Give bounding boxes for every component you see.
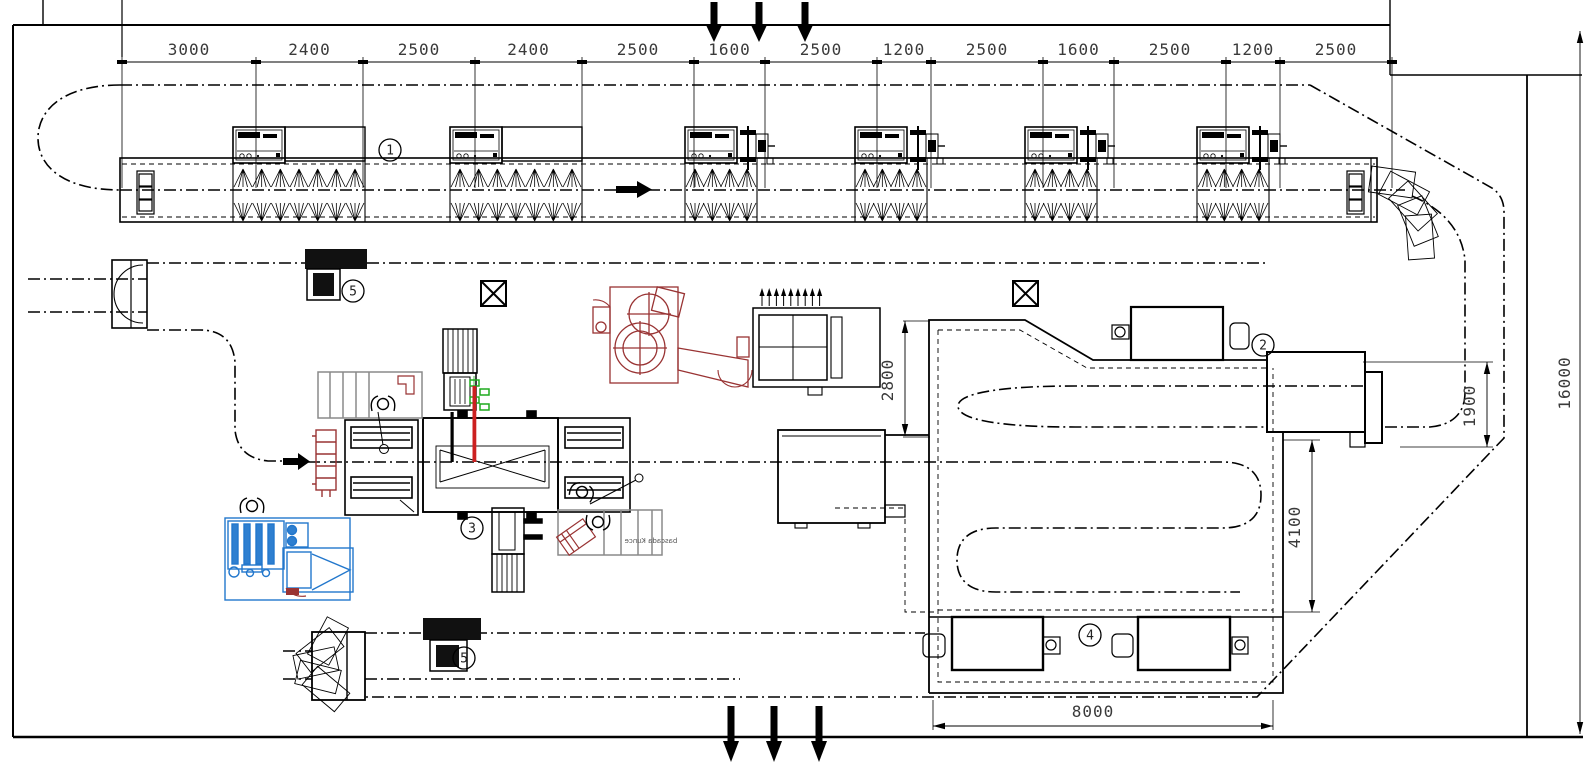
exhaust-arrow-head	[767, 288, 772, 296]
elevator-right	[1347, 171, 1364, 214]
spray-station	[1197, 126, 1287, 222]
spray-station	[233, 127, 365, 222]
x-box-marker	[1013, 281, 1038, 306]
exhaust-arrow-head	[810, 288, 815, 296]
dimension-tick	[1221, 60, 1231, 64]
station-label-4: 4	[1079, 624, 1101, 646]
turning-station-top-right	[1368, 166, 1438, 260]
dimension-value: 2400	[288, 40, 331, 59]
dimension-tick	[689, 60, 699, 64]
outlet-arrow	[811, 706, 827, 762]
dimension-value-loop-width: 2800	[878, 359, 897, 402]
worker-figure	[586, 515, 610, 530]
blower-assembly	[593, 287, 752, 387]
dim-arrow	[1309, 440, 1315, 452]
cabinet-extension	[285, 127, 365, 161]
exhaust-arrow-head	[781, 288, 786, 296]
dimension-tick	[1387, 60, 1397, 64]
station-label-1: 1	[379, 139, 401, 161]
dimension-value-outfeed-width: 1900	[1460, 385, 1479, 428]
entry-arrow	[283, 453, 310, 470]
spray-nozzles	[686, 169, 756, 221]
machine-2	[1112, 307, 1249, 360]
stop-bar-red	[473, 386, 477, 462]
spray-station	[450, 127, 582, 222]
spray-nozzles	[451, 169, 581, 221]
dimension-tick	[577, 60, 587, 64]
inlet-arrow	[706, 2, 722, 42]
exhaust-arrow-head	[817, 288, 822, 296]
dimension-tick	[117, 60, 127, 64]
floor-plan-drawing: 3000240025002400250016002500120025001600…	[0, 0, 1587, 772]
dimension-value: 2500	[617, 40, 660, 59]
transfer-block	[1267, 352, 1382, 447]
turntable-left	[112, 260, 147, 328]
dim-arrow	[1484, 435, 1490, 447]
dimension-value: 2500	[398, 40, 441, 59]
dim-arrow	[1309, 600, 1315, 612]
station-label-2: 2	[1252, 334, 1274, 356]
pusher-bar	[451, 412, 454, 462]
dimension-value: 3000	[168, 40, 211, 59]
outlet-arrow	[723, 706, 739, 762]
spray-nozzles	[1198, 169, 1268, 221]
spray-station	[855, 126, 945, 222]
dimension-tick	[251, 60, 261, 64]
dimension-tick	[872, 60, 882, 64]
dimension-tick	[1275, 60, 1285, 64]
dim-arrow	[902, 321, 908, 333]
dimension-tick	[1109, 60, 1119, 64]
machine-3-complex	[312, 329, 630, 592]
dimension-tick	[1038, 60, 1048, 64]
dimension-value: 1200	[1232, 40, 1275, 59]
worker-figure	[371, 396, 395, 411]
exhaust-arrows	[759, 288, 822, 306]
inlet-outlet-arrows	[706, 2, 827, 762]
dim-arrow	[1261, 723, 1273, 729]
dimension-value: 2400	[507, 40, 550, 59]
elevator-left	[137, 171, 154, 214]
cabinet-extension	[502, 127, 582, 161]
station-number: 2	[1259, 339, 1267, 354]
exhaust-filter-box	[753, 308, 880, 395]
cad-floor-plan: 3000240025002400250016002500120025001600…	[0, 0, 1587, 772]
dimension-value: 1600	[708, 40, 751, 59]
exhaust-arrow-head	[759, 288, 764, 296]
dim-arrow	[933, 723, 945, 729]
station-number: 3	[468, 522, 476, 537]
exhaust-arrow-head	[788, 288, 793, 296]
column-markers	[481, 281, 1038, 306]
dimension-value: 2500	[1149, 40, 1192, 59]
inlet-arrow	[797, 2, 813, 42]
station-label-3: 3	[461, 517, 483, 539]
machine-5-top	[305, 249, 367, 300]
dimension-value: 2500	[966, 40, 1009, 59]
station-label-5: 5	[342, 280, 364, 302]
dimension-tick	[926, 60, 936, 64]
station-number: 1	[386, 144, 394, 159]
dimension-value: 1200	[883, 40, 926, 59]
machine-5-bottom	[423, 618, 481, 671]
spray-nozzles	[856, 169, 926, 221]
lumber-rack-red	[312, 430, 336, 497]
dimension-tick	[760, 60, 770, 64]
spray-station	[1025, 126, 1115, 222]
dimension-tick	[358, 60, 368, 64]
dimension-value-height-right: 16000	[1555, 356, 1574, 409]
station-number: 5	[460, 652, 468, 667]
outlet-arrow	[766, 706, 782, 762]
worker-figure	[240, 498, 264, 513]
dim-arrow	[1577, 722, 1583, 734]
outfeed-unit	[492, 508, 542, 592]
turning-station-bottom-left	[293, 617, 365, 712]
dimension-value-storage-width: 8000	[1072, 702, 1115, 721]
pendant	[380, 445, 389, 454]
pendant	[635, 474, 643, 482]
dimension-value: 1600	[1057, 40, 1100, 59]
dimension-value: 2500	[800, 40, 843, 59]
central-press	[778, 430, 905, 528]
infeed-rack	[318, 372, 422, 418]
dim-arrow	[1577, 31, 1583, 43]
station-number: 4	[1086, 629, 1094, 644]
dimension-value-storage-height: 4100	[1285, 506, 1304, 549]
station-number: 5	[349, 285, 357, 300]
spray-nozzles	[1026, 169, 1096, 221]
exhaust-arrow-head	[795, 288, 800, 296]
x-box-marker	[481, 281, 506, 306]
plant-boundary	[13, 0, 1583, 737]
spray-nozzles	[234, 169, 364, 221]
exhaust-arrow-head	[774, 288, 779, 296]
spray-stations	[233, 126, 1287, 222]
exhaust-arrow-head	[803, 288, 808, 296]
dimension-tick	[470, 60, 480, 64]
workstation-mirrored-label: bascada Kunce	[625, 537, 678, 545]
inlet-arrow	[751, 2, 767, 42]
dimension-value: 2500	[1315, 40, 1358, 59]
saw-column	[443, 329, 477, 410]
spray-station	[685, 126, 775, 222]
flow-direction-arrow	[616, 181, 652, 198]
packing-machine-blue	[225, 518, 353, 600]
dim-arrow	[1484, 362, 1490, 374]
